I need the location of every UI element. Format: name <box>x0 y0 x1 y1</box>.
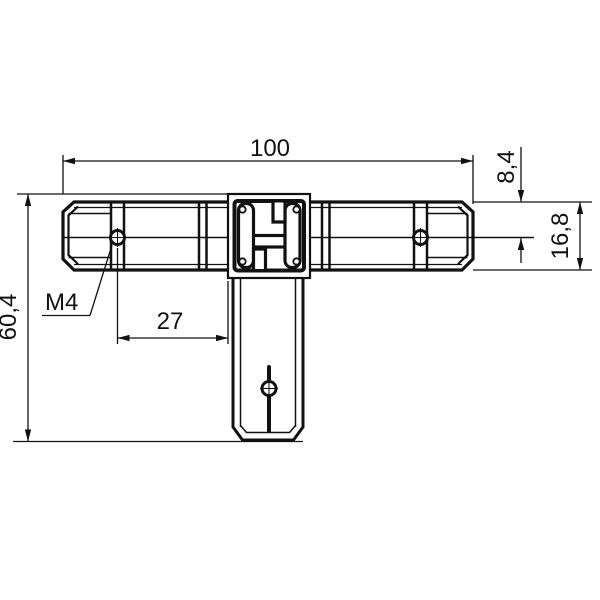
dim-100-arrow-left <box>63 158 75 164</box>
dim-27-arrow-right <box>216 335 228 341</box>
block-corner-channel-br <box>293 258 299 264</box>
dim-hole-offset: 8,4 <box>473 147 592 263</box>
dim-84-arrow-down <box>518 190 524 202</box>
dim-hole-spacing-label: 27 <box>157 308 184 335</box>
block-corner-channel-bl <box>239 258 245 264</box>
dim-604-arrow-up <box>25 194 31 206</box>
dim-overall-width-label: 100 <box>250 135 290 162</box>
dim-168-arrow-up <box>577 202 583 214</box>
dim-27-arrow-left <box>118 335 130 341</box>
technical-drawing-canvas: 100 8,4 16,8 60,4 27 M4 <box>0 0 600 600</box>
drawing-sheet: 100 8,4 16,8 60,4 27 M4 <box>0 0 600 600</box>
center-block <box>228 194 310 278</box>
block-corner-channel-tl <box>239 206 245 212</box>
h-profile-bottom-hook <box>254 249 266 269</box>
dim-604-arrow-down <box>25 430 31 442</box>
dim-84-arrow-up <box>518 238 524 250</box>
dim-overall-height-label: 60,4 <box>0 294 22 341</box>
dim-hole-offset-label: 8,4 <box>493 150 520 183</box>
dim-168-arrow-down <box>577 258 583 270</box>
h-profile-top-hook <box>273 203 285 223</box>
dim-profile-height: 16,8 <box>473 202 592 270</box>
thread-callout-label: M4 <box>45 289 78 316</box>
block-corner-channel-tr <box>293 206 299 212</box>
dim-profile-height-label: 16,8 <box>547 213 574 260</box>
dim-100-arrow-right <box>461 158 473 164</box>
vertical-leg <box>233 276 303 440</box>
